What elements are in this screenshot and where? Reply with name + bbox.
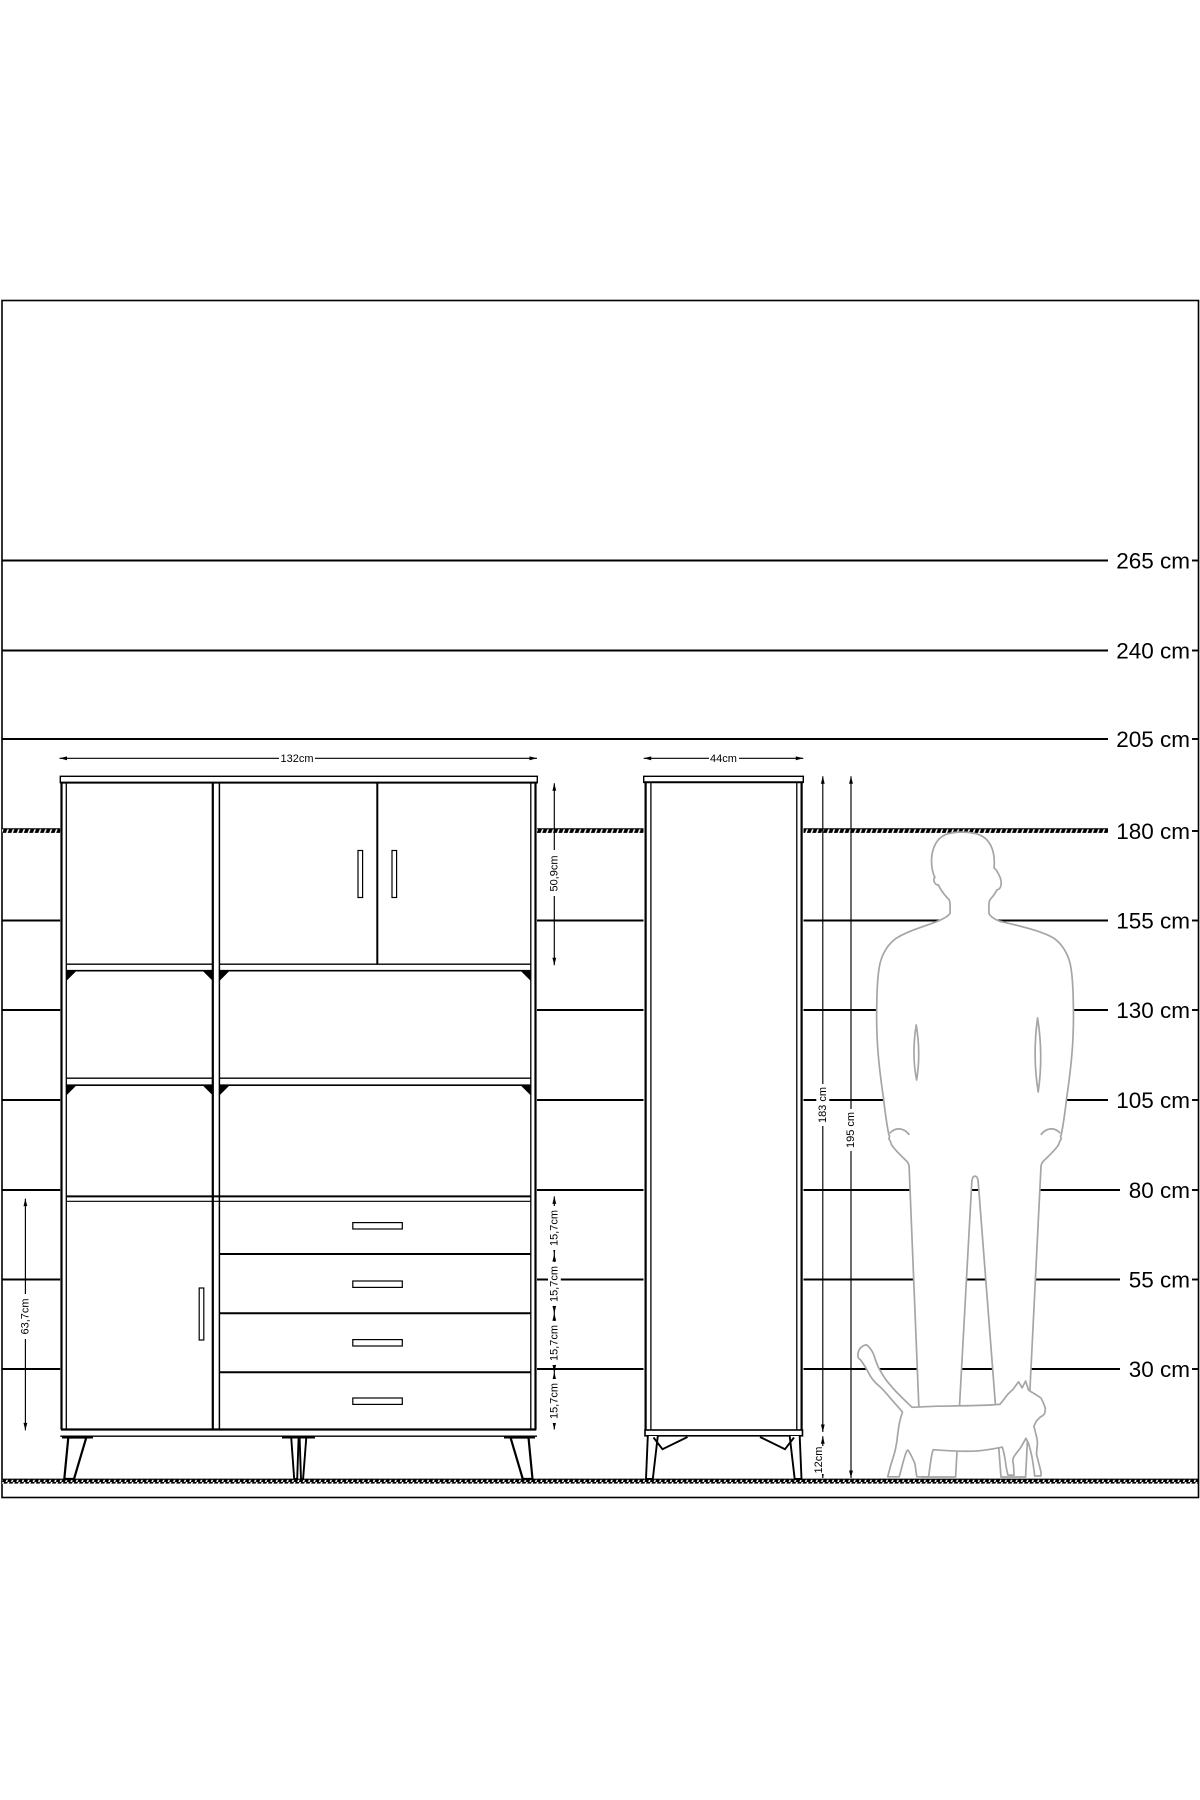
- svg-text:183 cm: 183 cm: [817, 1087, 829, 1123]
- svg-text:240 cm: 240 cm: [1116, 639, 1190, 664]
- svg-text:15,7cm: 15,7cm: [548, 1383, 560, 1419]
- svg-text:180 cm: 180 cm: [1116, 819, 1190, 844]
- svg-text:15,7cm: 15,7cm: [548, 1325, 560, 1361]
- svg-text:63,7cm: 63,7cm: [19, 1298, 31, 1334]
- svg-text:80 cm: 80 cm: [1129, 1178, 1190, 1203]
- svg-text:30 cm: 30 cm: [1129, 1357, 1190, 1382]
- svg-text:130 cm: 130 cm: [1116, 998, 1190, 1023]
- svg-text:44cm: 44cm: [710, 753, 737, 765]
- svg-text:15,7cm: 15,7cm: [548, 1210, 560, 1246]
- svg-text:205 cm: 205 cm: [1116, 727, 1190, 752]
- svg-text:15,7cm: 15,7cm: [548, 1266, 560, 1302]
- svg-text:50,9cm: 50,9cm: [548, 855, 560, 891]
- svg-text:155 cm: 155 cm: [1116, 909, 1190, 934]
- svg-text:265 cm: 265 cm: [1116, 549, 1190, 574]
- svg-text:12cm: 12cm: [813, 1447, 825, 1474]
- svg-text:105 cm: 105 cm: [1116, 1088, 1190, 1113]
- svg-text:132cm: 132cm: [280, 753, 313, 765]
- svg-text:55 cm: 55 cm: [1129, 1268, 1190, 1293]
- svg-text:195 cm: 195 cm: [845, 1112, 857, 1148]
